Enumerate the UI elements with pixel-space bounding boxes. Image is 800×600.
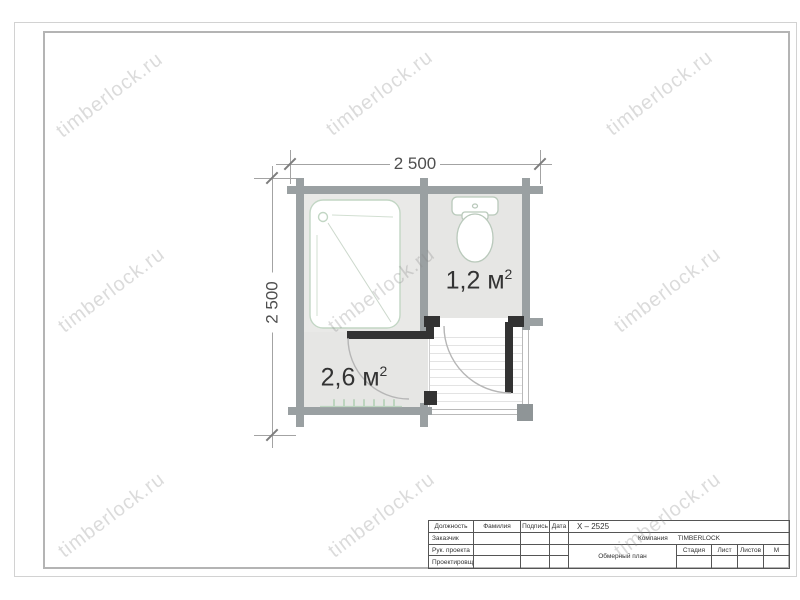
- titleblock-meta-scale: М: [764, 545, 789, 556]
- titleblock-empty-cell: [474, 545, 521, 556]
- room-area-value: 2,6 м: [321, 363, 380, 391]
- room-area-sup: 2: [505, 266, 513, 282]
- room-label-toilet: 1,2 м2: [427, 266, 531, 295]
- titleblock-empty-cell: [521, 533, 550, 545]
- room-area-value: 1,2 м: [446, 266, 505, 294]
- titleblock-empty-cell: [550, 533, 569, 545]
- room-label-washroom: 2,6 м2: [302, 363, 406, 392]
- titleblock-empty-cell: [474, 556, 521, 568]
- company-name: TIMBERLOCK: [678, 535, 720, 542]
- titleblock-company: Компания TIMBERLOCK: [569, 533, 789, 545]
- titleblock-meta-sheet: Лист: [712, 545, 738, 556]
- titleblock-empty-cell: [521, 545, 550, 556]
- titleblock-header-date: Дата: [550, 521, 569, 533]
- titleblock-empty-cell: [764, 556, 789, 568]
- drawing-sheet: 2 500 2 500 1,2 м2 2,6 м2 Должность Фами…: [0, 0, 800, 600]
- titleblock-project-code: X – 2525: [569, 521, 789, 533]
- toilet-door-arc: [444, 326, 511, 393]
- titleblock-role-designer: Проектировщик: [429, 556, 474, 568]
- titleblock-role-customer: Заказчик: [429, 533, 474, 545]
- heater: [320, 400, 402, 407]
- titleblock-header-signature: Подпись: [521, 521, 550, 533]
- titleblock-empty-cell: [521, 556, 550, 568]
- titleblock-empty-cell: [712, 556, 738, 568]
- titleblock-empty-cell: [474, 533, 521, 545]
- room-area-sup: 2: [380, 363, 388, 379]
- toilet: [452, 197, 498, 262]
- titleblock-meta-sheets: Листов: [738, 545, 764, 556]
- titleblock-role-project-lead: Рук. проекта: [429, 545, 474, 556]
- titleblock-header-surname: Фамилия: [474, 521, 521, 533]
- titleblock-empty-cell: [738, 556, 764, 568]
- titleblock-empty-cell: [550, 556, 569, 568]
- titleblock-header-position: Должность: [429, 521, 474, 533]
- titleblock-meta-stage: Стадия: [677, 545, 712, 556]
- titleblock-empty-cell: [677, 556, 712, 568]
- titleblock-empty-cell: [550, 545, 569, 556]
